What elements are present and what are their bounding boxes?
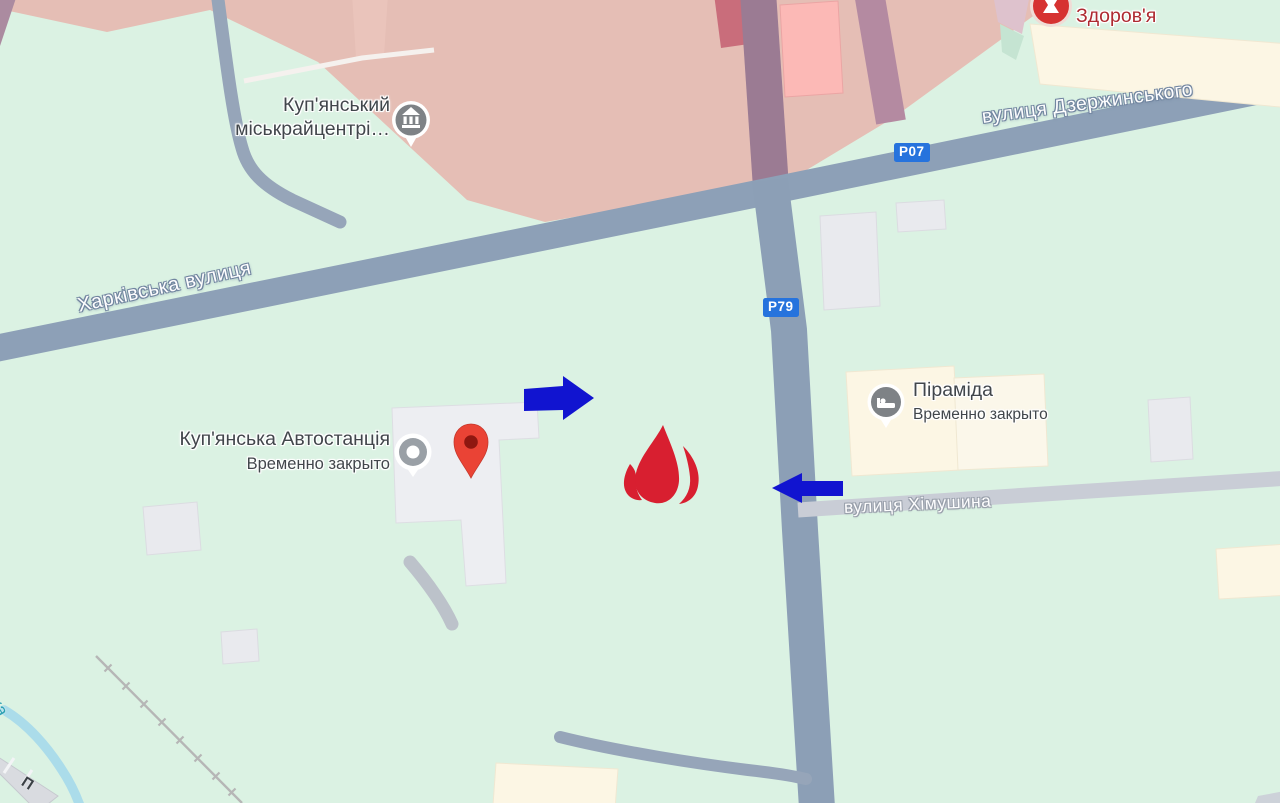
flame-icon — [624, 425, 699, 504]
closed-place-marker-avtostantsiia[interactable] — [395, 434, 432, 478]
arrow-left-annotation — [772, 473, 843, 503]
map-markers-layer — [0, 0, 1280, 803]
map-canvas[interactable]: Харківська вулиця вулиця Дзержинського в… — [0, 0, 1280, 803]
institution-pin-icon[interactable] — [392, 101, 430, 147]
arrow-right-annotation — [524, 376, 594, 420]
hotel-pin-icon[interactable] — [868, 384, 905, 429]
red-map-pin[interactable] — [454, 424, 488, 478]
pharmacy-pin-icon[interactable] — [1030, 0, 1072, 27]
